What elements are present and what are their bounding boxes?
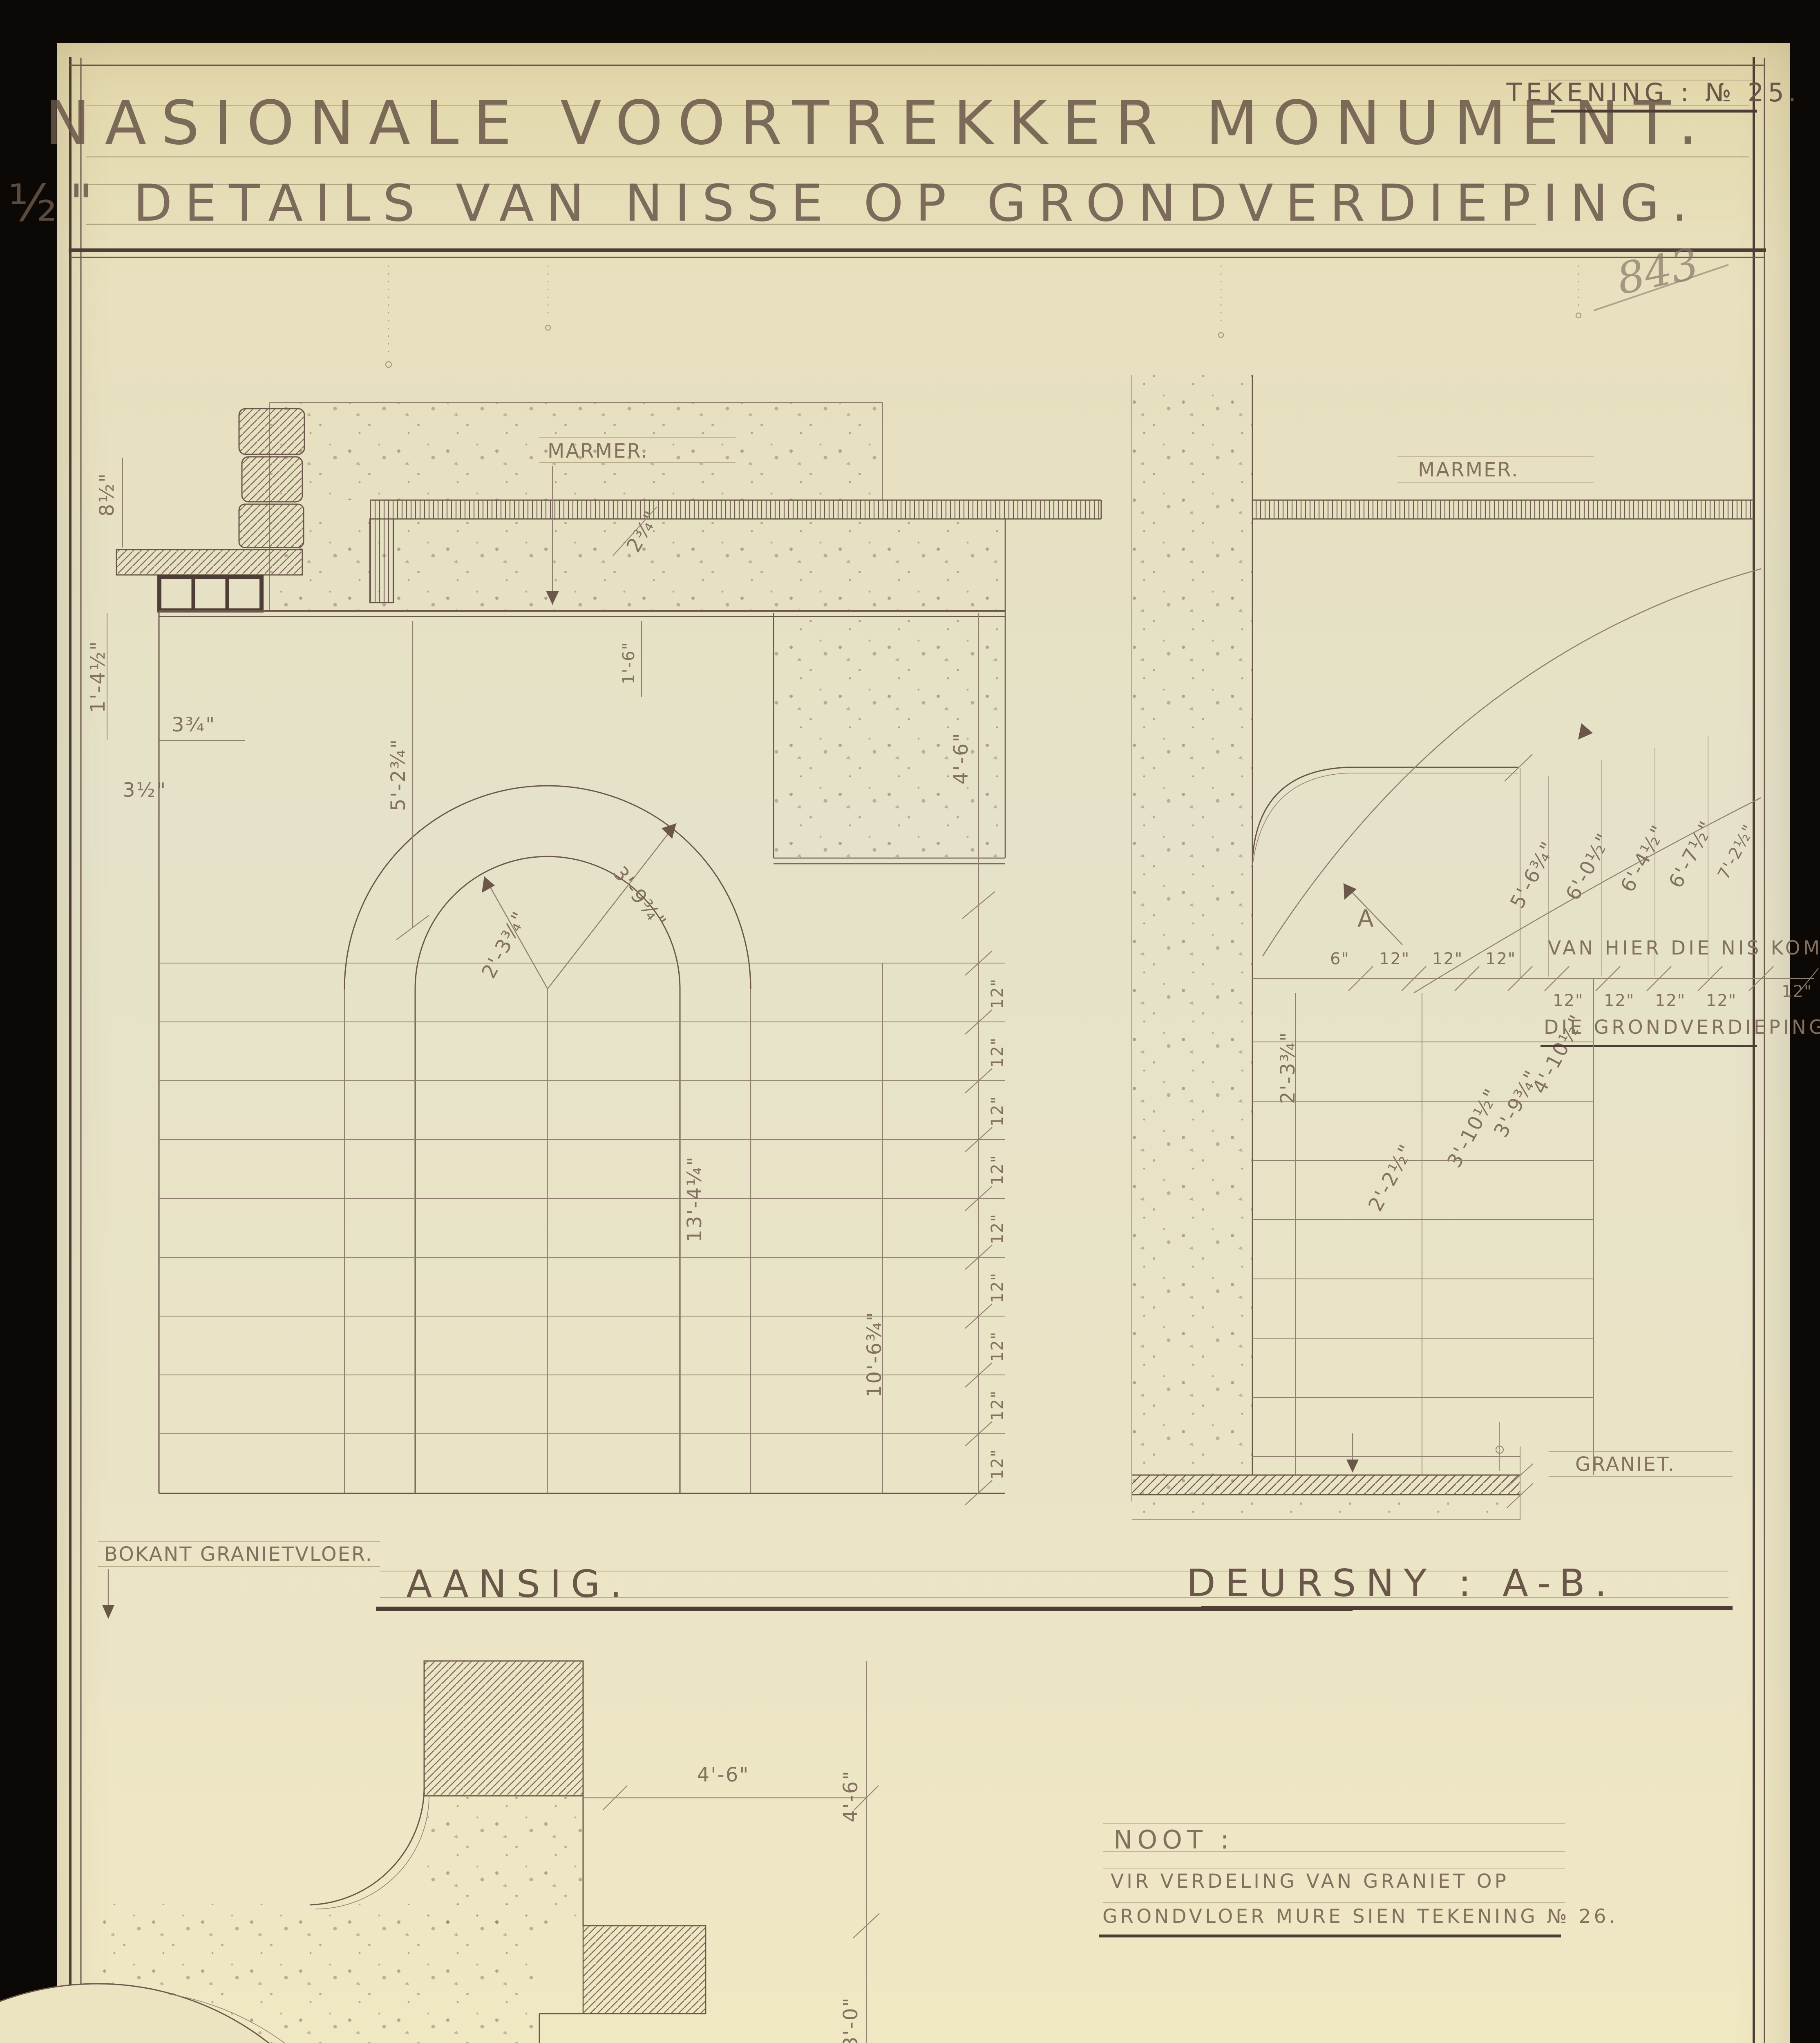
dim-total-height: 13'-4¼" <box>683 1156 706 1242</box>
deursny-label: DEURSNY : A-B. <box>1187 1561 1617 1605</box>
dim-right-height: 4'-6" <box>950 732 973 785</box>
dim-arch-radius-inner: 2'-3¾" <box>477 907 532 982</box>
granite-bed-stipple <box>1132 1495 1520 1518</box>
sheet-title: NASIONALE VOORTREKKER MONUMENT. <box>45 88 1712 158</box>
course-label: 12" <box>988 978 1007 1009</box>
section-marker-a: A <box>1357 905 1375 932</box>
note-tick-label: 12" <box>1553 991 1583 1010</box>
note-tick-label: 12" <box>1706 991 1737 1010</box>
marble-band <box>370 500 1101 519</box>
tick-label: 12" <box>1432 950 1463 968</box>
aansig-label: AANSIG. <box>406 1562 631 1606</box>
drawing-number: TEKENING : № 25. <box>1506 78 1800 107</box>
sheet-subtitle: ½" DETAILS VAN NISSE OP GRONDVERDIEPING. <box>8 174 1700 233</box>
dim-plan-top-width: 4'-6" <box>697 1764 750 1786</box>
border-frame <box>70 58 1764 2043</box>
step-cap <box>583 1926 706 2014</box>
note-tick-label: 12" <box>1604 991 1634 1010</box>
dim-left-height: 5'-2¾" <box>387 738 410 811</box>
note-tick-label: 12" <box>1655 991 1686 1010</box>
pier-stipple <box>1132 375 1252 1502</box>
plan-vdim: 3'-0" <box>839 1996 862 2043</box>
plan-drawing: 4'-6" 4'-6" 3'-0" 6¾" 1'-6" 4'-7½" 1'-6"… <box>0 1661 1210 2043</box>
arc-dim: 7'-2½" <box>1714 821 1759 883</box>
marble-label: MARMER. <box>548 440 648 463</box>
dim-coping-offset: 3¾" <box>172 713 216 736</box>
title-block: NASIONALE VOORTREKKER MONUMENT. ½" DETAI… <box>8 78 1800 367</box>
stamp-scribble: 843 <box>1612 239 1703 304</box>
course-label: 12" <box>988 1155 1007 1185</box>
floor-note: BOKANT GRANIETVLOER. <box>104 1543 373 1566</box>
niche-bullnose <box>1252 767 1518 860</box>
pencil-artifacts <box>386 266 1581 367</box>
drawing-linework: NASIONALE VOORTREKKER MONUMENT. ½" DETAI… <box>0 0 1820 2043</box>
course-label: 12" <box>988 1390 1007 1421</box>
arc-dim: 5'-6¾" <box>1506 837 1560 912</box>
noot-heading: NOOT : <box>1113 1825 1234 1855</box>
plan-vdim: 4'-6" <box>839 1770 862 1822</box>
dim-coping-height: 8½" <box>96 472 119 516</box>
nis-note-line2: DIE GRONDVERDIEPING VOOR. <box>1544 1016 1820 1039</box>
arc-dim: 6'-4½" <box>1616 821 1670 896</box>
dim-opening-height: 10'-6¾" <box>863 1311 886 1397</box>
arc-dim: 6'-0½" <box>1561 829 1616 904</box>
noot-line1: VIR VERDELING VAN GRANIET OP <box>1111 1870 1509 1893</box>
note-block: NOOT : VIR VERDELING VAN GRANIET OP GRON… <box>1099 1823 1618 1936</box>
stem-wall-hatched <box>424 1661 583 1796</box>
granite-floor <box>1132 1475 1520 1495</box>
tick-label: 6" <box>1330 950 1350 968</box>
nis-note-line1: VAN HIER DIE NIS KOM 8 OP <box>1548 937 1820 959</box>
marble-band <box>1252 500 1754 519</box>
arc-dim: 2'-2½" <box>1364 1140 1418 1215</box>
course-label: 12" <box>988 1037 1007 1068</box>
course-label: 12" <box>988 1214 1007 1244</box>
fillet-arc <box>310 1790 424 1905</box>
arch-inner <box>415 856 680 989</box>
noot-line2: GRONDVLOER MURE SIEN TEKENING № 26. <box>1102 1905 1618 1928</box>
tick-label: 12" <box>1485 950 1516 968</box>
dim-plinth-offset: 3½" <box>123 779 167 802</box>
course-label: 12" <box>988 1272 1007 1303</box>
arc-dim: 6'-7½" <box>1664 817 1719 892</box>
arch-outer <box>344 786 751 989</box>
course-label: 12" <box>988 1449 1007 1480</box>
marble-label: MARMER. <box>1418 458 1519 481</box>
course-label: 12" <box>988 1096 1007 1127</box>
granite-label: GRANIET. <box>1575 1453 1675 1476</box>
scanned-drawing-sheet: NASIONALE VOORTREKKER MONUMENT. ½" DETAI… <box>0 0 1820 2043</box>
note-tick-label: 12" <box>1782 982 1812 1001</box>
deursny-drawing: MARMER. A 2'-3¾" 2'-2½" 3'-10½" 3'-9¾" 4… <box>1132 375 1820 1608</box>
tick-label: 12" <box>1379 950 1410 968</box>
marble-return <box>370 519 394 603</box>
course-label: 12" <box>988 1331 1007 1362</box>
dim-jamb-width: 1'-6" <box>619 642 638 684</box>
dim-coping-width: 1'-4½" <box>87 640 110 713</box>
